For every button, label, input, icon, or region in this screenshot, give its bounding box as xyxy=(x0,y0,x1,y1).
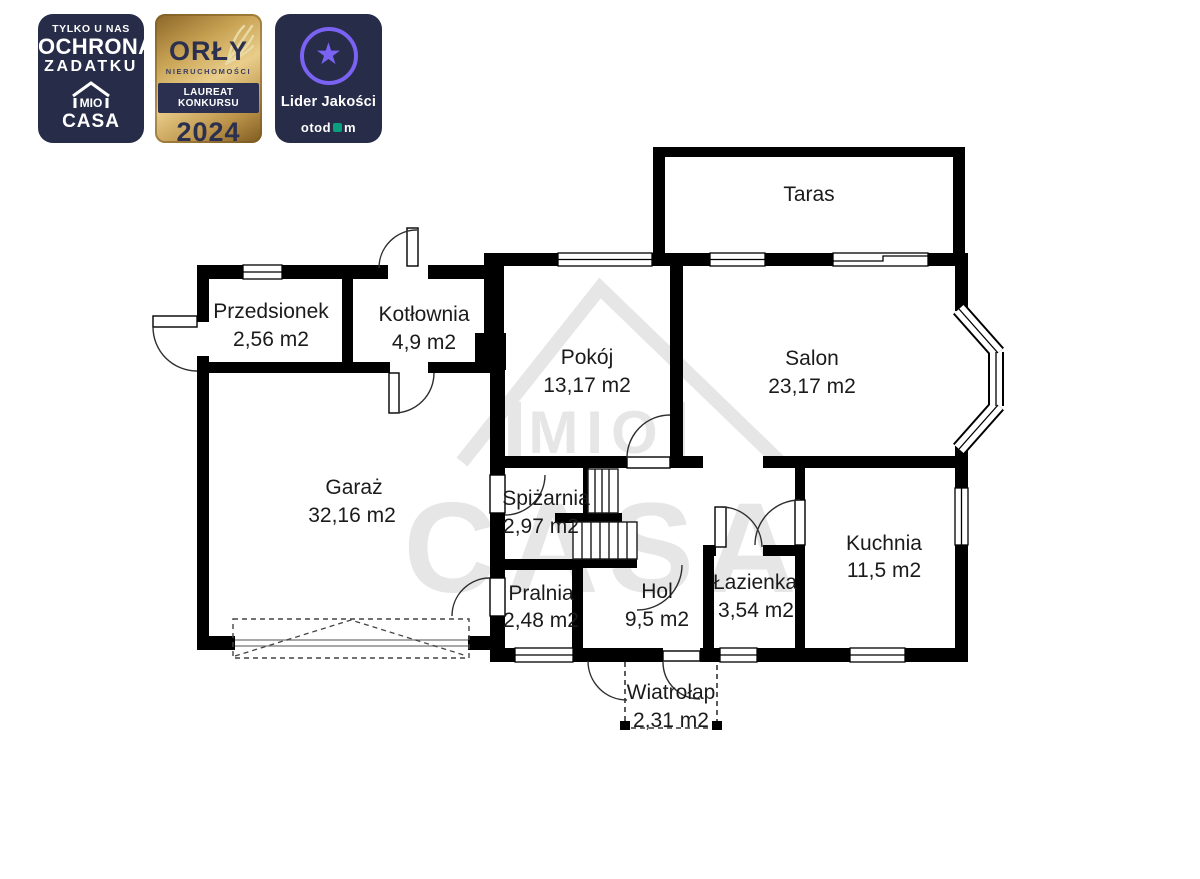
room-label-taras: Taras xyxy=(783,183,834,206)
window-pokoj xyxy=(558,253,652,266)
room-area-przedsionek: 2,56 m2 xyxy=(233,328,309,351)
window-pralnia xyxy=(515,648,573,662)
room-area-salon: 23,17 m2 xyxy=(768,375,856,398)
room-label-wiatrolap: Wiatrołap xyxy=(627,681,716,704)
bay-window xyxy=(959,309,998,449)
door-wiatrolap-second xyxy=(588,661,627,700)
sliding-door-salon xyxy=(833,253,928,266)
room-area-garaz: 32,16 m2 xyxy=(308,504,396,527)
room-label-garaz: Garaż xyxy=(325,476,382,499)
window-kuchnia-right xyxy=(955,488,968,545)
room-area-pokoj: 13,17 m2 xyxy=(543,374,631,397)
floorplan-drawing: MIO CASA xyxy=(0,0,1200,879)
room-label-kuchnia: Kuchnia xyxy=(846,532,922,555)
room-label-lazienka: Łazienka xyxy=(713,571,797,594)
room-label-kotlownia: Kotłownia xyxy=(378,303,469,326)
room-area-lazienka: 3,54 m2 xyxy=(718,599,794,622)
floorplan-page: TYLKO U NAS OCHRONA ZADATKU MIO CASA ORŁ… xyxy=(0,0,1200,879)
room-label-salon: Salon xyxy=(785,347,839,370)
window-lazienka xyxy=(720,648,757,662)
room-area-hol: 9,5 m2 xyxy=(625,608,689,631)
watermark-mio: MIO xyxy=(528,399,665,466)
room-area-pralnia: 2,48 m2 xyxy=(503,609,579,632)
room-area-kuchnia: 11,5 m2 xyxy=(847,559,921,582)
room-area-spizarnia: 2,97 m2 xyxy=(503,515,579,538)
room-label-pokoj: Pokój xyxy=(561,346,614,369)
door-kotlownia-exterior xyxy=(379,228,418,268)
window-kuchnia-bottom xyxy=(850,648,905,662)
window-przedsionek xyxy=(243,265,282,279)
door-entrance-przedsionek xyxy=(153,316,197,371)
orly-title: ORŁY xyxy=(155,38,262,65)
room-label-pralnia: Pralnia xyxy=(508,582,574,605)
garage-door xyxy=(233,619,469,658)
room-area-kotlownia: 4,9 m2 xyxy=(392,331,456,354)
room-area-wiatrolap: 2,31 m2 xyxy=(633,709,709,732)
window-salon-left xyxy=(710,253,765,266)
room-label-przedsionek: Przedsionek xyxy=(213,300,329,323)
door-kotlownia-garaz xyxy=(389,373,434,413)
room-label-spizarnia: Spiżarnia xyxy=(502,487,590,510)
room-label-hol: Hol xyxy=(641,580,673,603)
